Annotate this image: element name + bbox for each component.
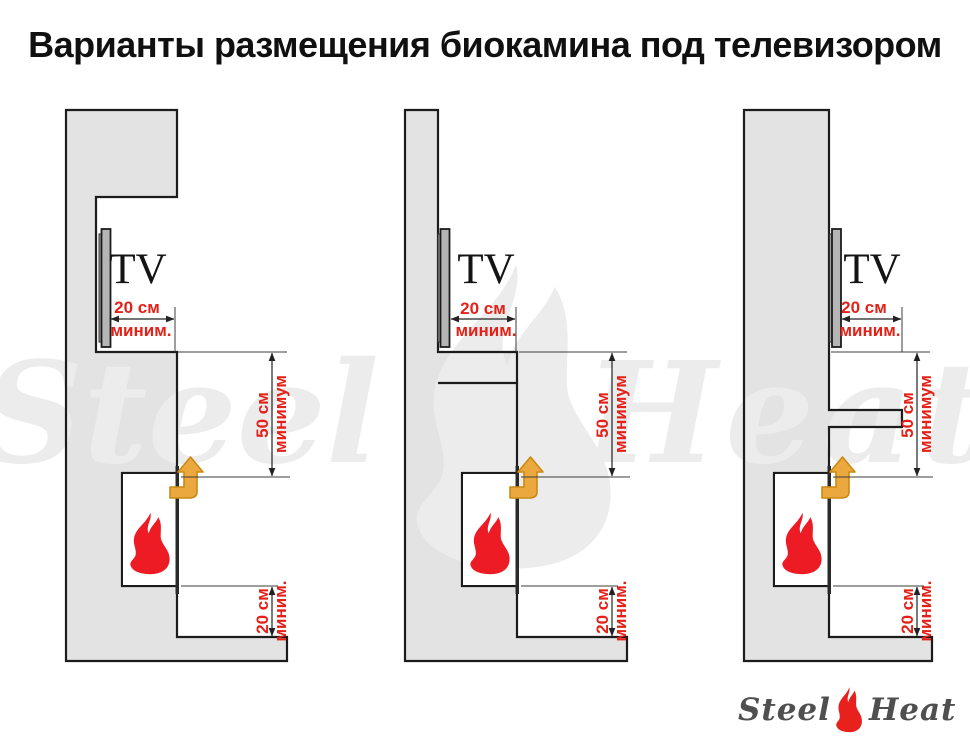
dim-clearance-qualifier: минимум (271, 354, 291, 474)
dim-clearance-value: 50 см (898, 355, 918, 475)
fireplace-glass-panel (828, 466, 832, 594)
dim-clearance-qualifier: минимум (916, 354, 936, 474)
tv-label: TV (93, 247, 183, 293)
fireplace-glass-panel (516, 466, 520, 594)
dim-bottom-qualifier: миним. (611, 551, 631, 671)
dim-tv-depth-value: 20 см (809, 299, 919, 317)
brand-logo: Steel Heat (738, 684, 956, 736)
tv-label: TV (441, 247, 531, 293)
diagram-scene: Steel Heat (0, 0, 970, 749)
dim-tv-depth-qualifier: миним. (815, 322, 925, 340)
dim-bottom-value: 20 см (253, 551, 273, 671)
dim-clearance-value: 50 см (253, 355, 273, 475)
logo-text-right: Heat (869, 692, 956, 728)
dim-bottom-qualifier: миним. (271, 551, 291, 671)
logo-flame-icon (834, 686, 866, 734)
dim-tv-depth-value: 20 см (82, 299, 192, 317)
dim-bottom-value: 20 см (898, 551, 918, 671)
dim-bottom-value: 20 см (593, 551, 613, 671)
dim-tv-depth-qualifier: миним. (86, 322, 196, 340)
logo-text-left: Steel (738, 692, 831, 728)
dim-tv-depth-qualifier: миним. (431, 322, 541, 340)
dim-bottom-qualifier: миним. (916, 551, 936, 671)
page-title: Варианты размещения биокамина под телеви… (0, 24, 970, 66)
dim-clearance-qualifier: минимум (611, 354, 631, 474)
tv-label: TV (827, 247, 917, 293)
fireplace-glass-panel (176, 466, 180, 594)
infographic-canvas: Steel Heat (0, 0, 970, 749)
dim-tv-depth-value: 20 см (428, 300, 538, 318)
dim-clearance-value: 50 см (593, 355, 613, 475)
